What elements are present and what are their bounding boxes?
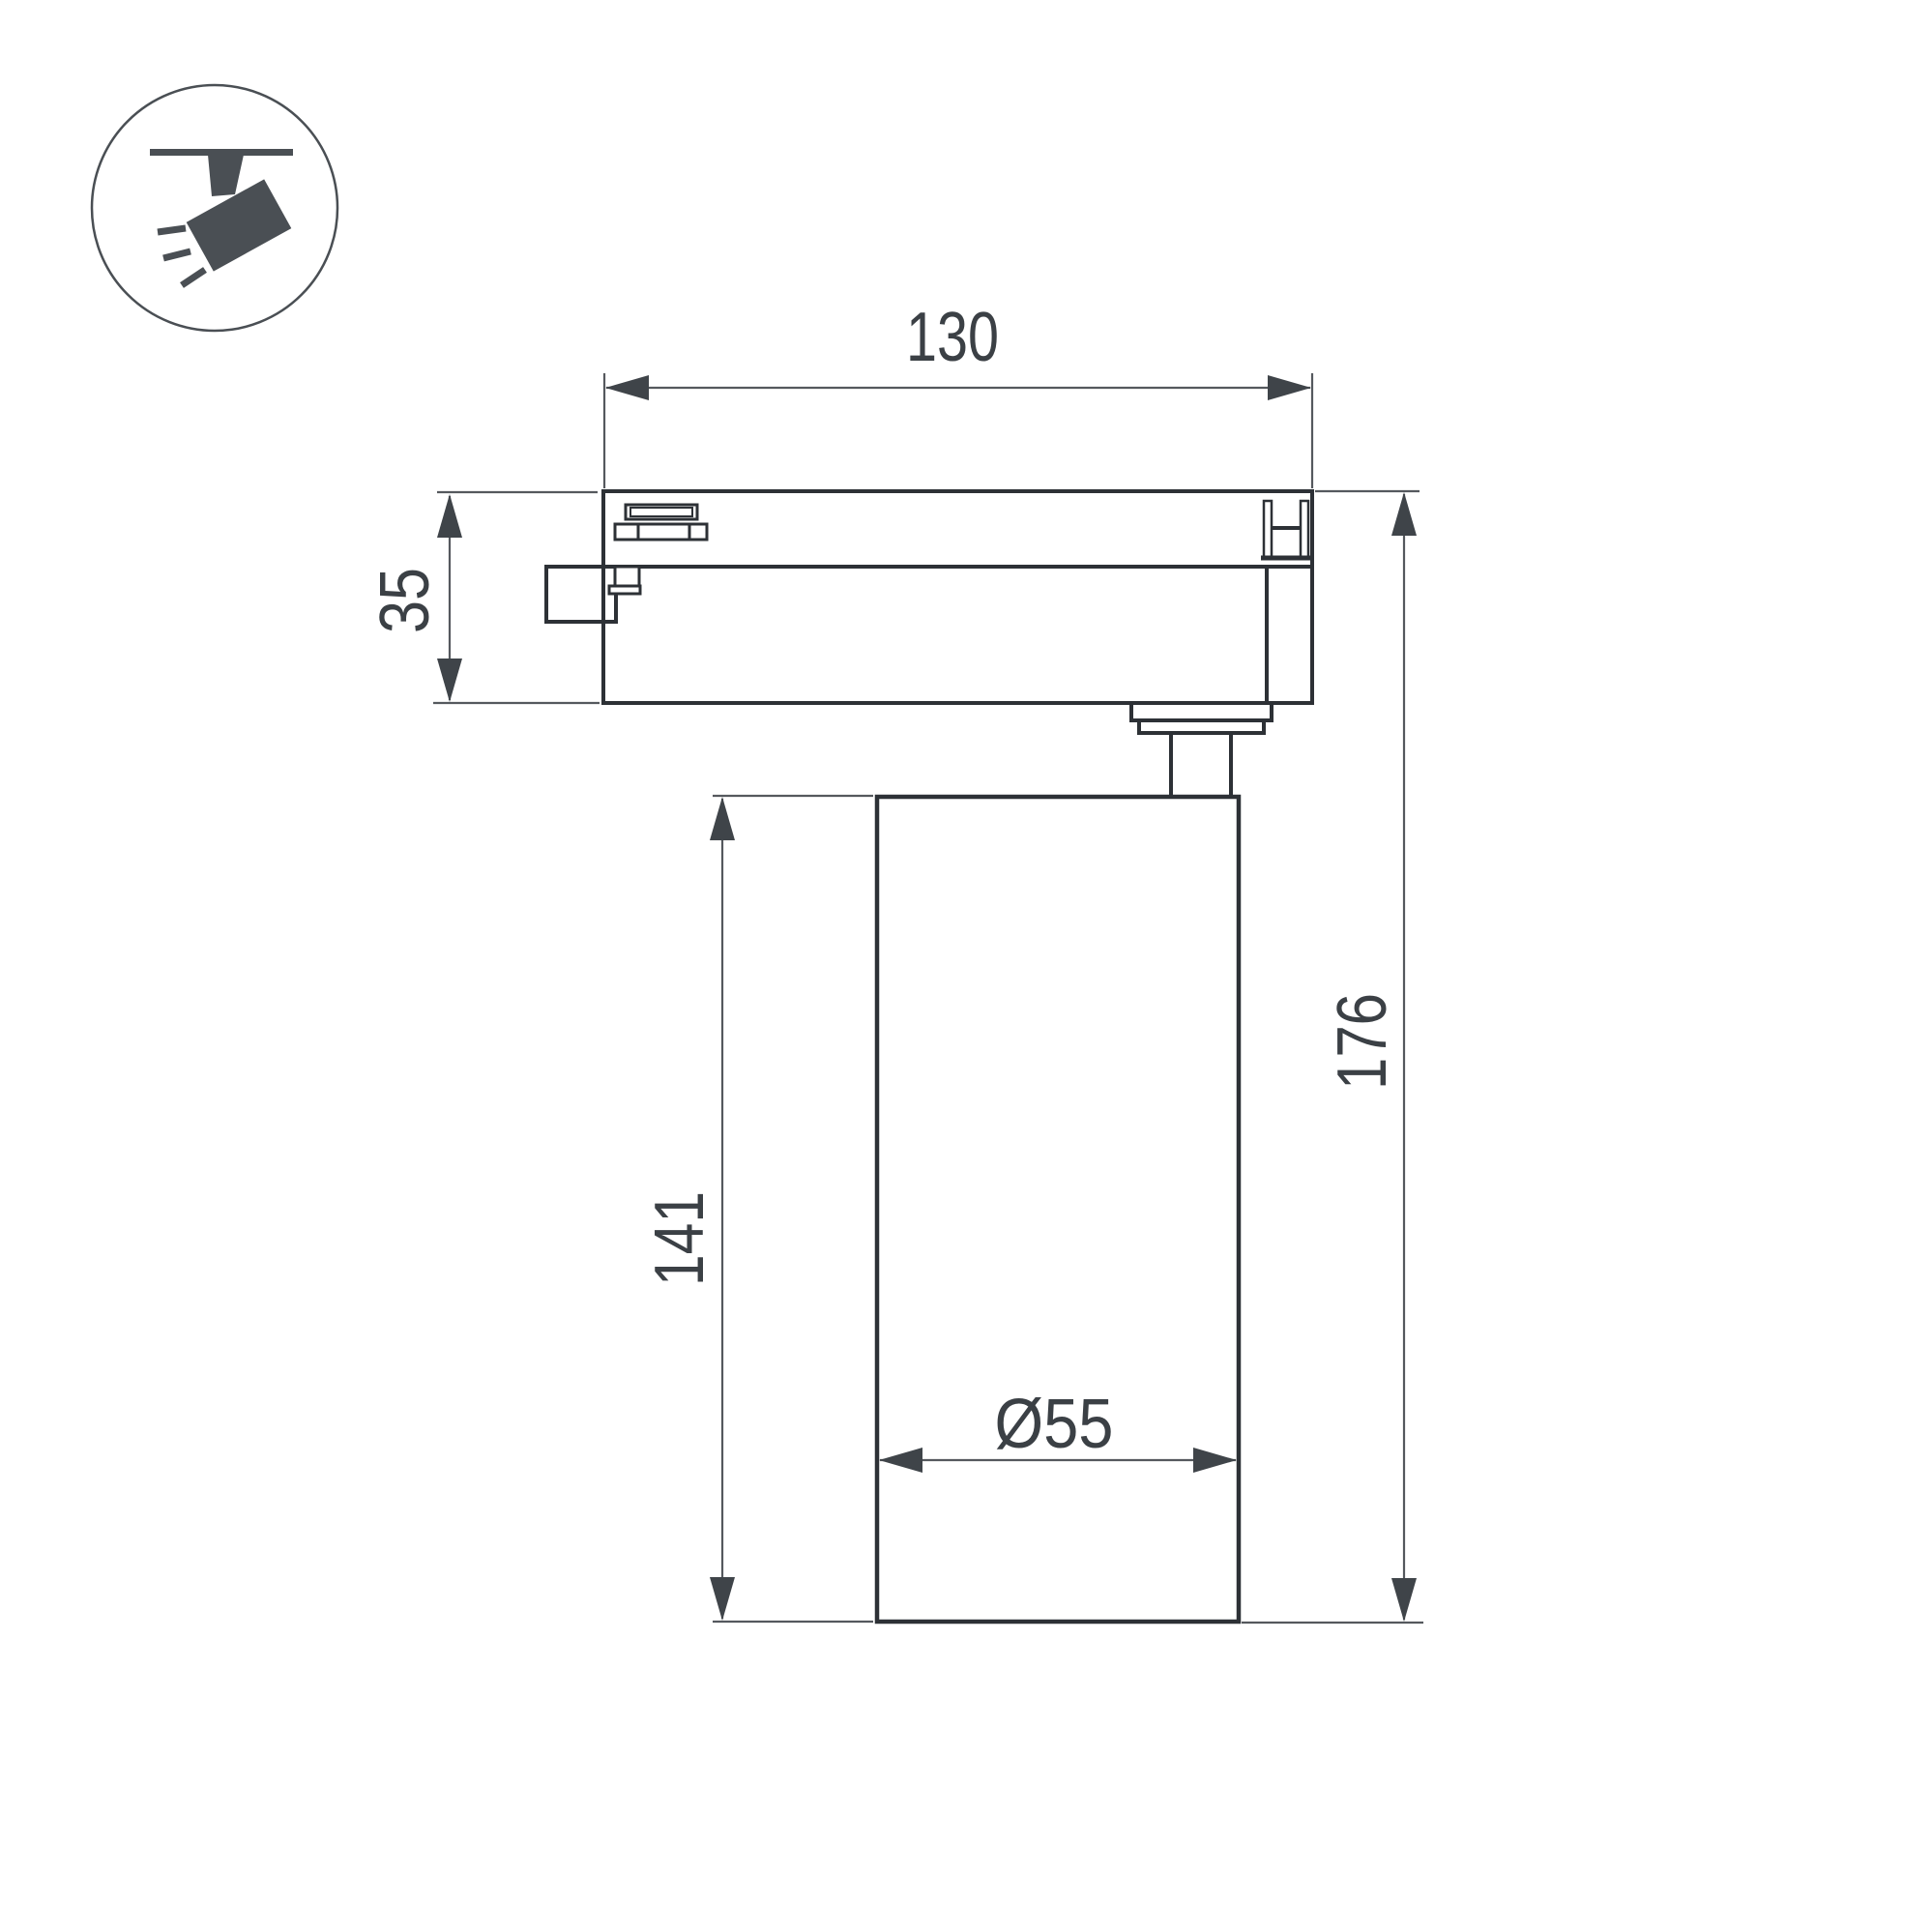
arrowhead-down (437, 659, 462, 702)
dim-label-total-height: 176 (1324, 993, 1401, 1090)
drawing-canvas: 130 35 141 176 Ø55 (0, 0, 1932, 1932)
dim-adapter-height: 35 (366, 492, 600, 703)
contact-block (615, 524, 707, 540)
arrowhead-up (437, 494, 462, 538)
lever-latch-step (609, 586, 640, 594)
dim-label-body-height: 141 (641, 1191, 718, 1286)
dim-label-track-width: 130 (906, 299, 999, 376)
dim-track-width: 130 (604, 299, 1312, 488)
track-spotlight-icon (92, 85, 337, 331)
icon-light-ray (158, 228, 186, 232)
adapter-lower-housing (603, 567, 1312, 703)
adapter-upper-section (603, 491, 1312, 567)
arrowhead-down (710, 1577, 735, 1621)
arrowhead-down (1391, 1578, 1417, 1622)
hinge-neck (1171, 733, 1231, 797)
icon-track-bar (150, 149, 293, 156)
dim-label-body-diameter: Ø55 (995, 1386, 1114, 1463)
lamp-body (877, 797, 1239, 1622)
arrowhead-up (1391, 492, 1417, 536)
arrowhead-right (1268, 375, 1311, 400)
dim-body-height: 141 (641, 796, 873, 1622)
dimension-drawing-page: 130 35 141 176 Ø55 (0, 0, 1932, 1932)
arrowhead-up (710, 797, 735, 840)
hinge-flange-upper (1131, 703, 1272, 720)
arrowhead-left (605, 375, 649, 400)
dim-label-adapter-height: 35 (366, 568, 444, 633)
